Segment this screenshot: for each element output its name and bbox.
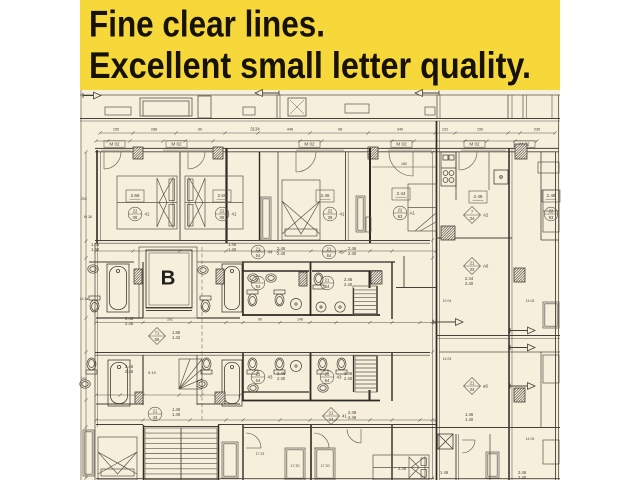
svg-text:14 03: 14 03 (526, 437, 535, 441)
svg-text:17 20: 17 20 (321, 464, 330, 468)
svg-text:21: 21 (256, 278, 261, 283)
svg-text:17 23: 17 23 (256, 452, 265, 456)
svg-text:M 02: M 02 (109, 142, 120, 147)
svg-text:3134: 3134 (250, 127, 260, 132)
svg-text:21: 21 (325, 278, 330, 283)
svg-text:A2: A2 (483, 213, 489, 218)
svg-text:41: 41 (232, 212, 237, 217)
svg-text:10 04: 10 04 (443, 299, 452, 303)
svg-text:A1: A1 (410, 211, 416, 216)
svg-text:21: 21 (325, 372, 330, 377)
svg-text:M 36: M 36 (84, 215, 92, 219)
svg-text:14 03: 14 03 (526, 299, 535, 303)
svg-text:1 46: 1 46 (440, 470, 449, 475)
svg-text:2.60: 2.60 (218, 193, 227, 198)
svg-text:21: 21 (470, 260, 475, 265)
svg-text:2.66: 2.66 (131, 193, 140, 198)
svg-text:M 02: M 02 (396, 142, 407, 147)
svg-text:102: 102 (442, 128, 448, 132)
svg-text:98: 98 (338, 128, 342, 132)
svg-text:44: 44 (268, 250, 273, 255)
svg-text:43: 43 (268, 375, 273, 380)
svg-text:22: 22 (549, 209, 554, 214)
svg-text:22: 22 (133, 209, 138, 214)
svg-text:54: 54 (256, 253, 261, 258)
svg-text:2.40: 2.40 (348, 251, 357, 256)
svg-text:8 19: 8 19 (148, 371, 155, 375)
svg-text:2.46: 2.46 (398, 466, 407, 471)
svg-text:14 03: 14 03 (443, 357, 452, 361)
svg-text:21: 21 (329, 410, 334, 415)
svg-text:22: 22 (220, 209, 225, 214)
svg-text:148: 148 (297, 318, 303, 322)
svg-text:17 20: 17 20 (291, 464, 300, 468)
svg-text:2.46: 2.46 (348, 415, 357, 420)
svg-text:24: 24 (329, 417, 334, 422)
svg-text:22: 22 (398, 208, 403, 213)
svg-text:M 02: M 02 (304, 142, 315, 147)
svg-text:39: 39 (328, 215, 333, 220)
svg-text:21: 21 (470, 380, 475, 385)
svg-text:292: 292 (167, 318, 173, 322)
svg-text:43: 43 (337, 375, 342, 380)
svg-text:33: 33 (470, 267, 475, 272)
svg-text:1.40: 1.40 (465, 417, 474, 422)
svg-text:96: 96 (258, 318, 262, 322)
svg-text:2.40: 2.40 (277, 251, 286, 256)
svg-text:54: 54 (256, 284, 261, 289)
svg-text:21: 21 (327, 247, 332, 252)
svg-text:2.40: 2.40 (465, 281, 474, 286)
svg-text:55: 55 (155, 337, 160, 342)
svg-text:340: 340 (397, 128, 403, 132)
svg-text:2.40: 2.40 (344, 282, 353, 287)
svg-text:93: 93 (549, 215, 554, 220)
svg-text:2.40: 2.40 (277, 376, 286, 381)
svg-text:A6: A6 (483, 264, 489, 269)
svg-text:446: 446 (287, 128, 293, 132)
svg-text:235: 235 (534, 128, 540, 132)
svg-text:90: 90 (198, 128, 202, 132)
svg-text:150: 150 (113, 128, 119, 132)
svg-text:a6: a6 (483, 384, 488, 389)
svg-text:21: 21 (256, 247, 261, 252)
svg-text:43: 43 (153, 415, 158, 420)
svg-text:Fine clear lines.: Fine clear lines. (89, 4, 325, 45)
svg-text:2.49: 2.49 (474, 194, 483, 199)
svg-text:34: 34 (470, 216, 475, 221)
svg-text:34: 34 (470, 387, 475, 392)
svg-text:2.46: 2.46 (321, 193, 330, 198)
svg-text:54: 54 (325, 378, 330, 383)
svg-text:2.40: 2.40 (344, 376, 353, 381)
svg-text:54: 54 (327, 253, 332, 258)
svg-text:2.40: 2.40 (518, 475, 527, 480)
svg-text:292: 292 (81, 197, 87, 201)
svg-text:2.45: 2.45 (125, 321, 134, 326)
svg-text:22: 22 (328, 209, 333, 214)
svg-text:45: 45 (339, 250, 344, 255)
svg-text:21: 21 (153, 409, 158, 414)
svg-text:54: 54 (256, 378, 261, 383)
svg-text:1.42: 1.42 (172, 335, 181, 340)
svg-text:08: 08 (133, 215, 138, 220)
svg-text:B: B (161, 267, 176, 290)
svg-text:1.40: 1.40 (228, 247, 237, 252)
svg-text:54: 54 (325, 284, 330, 289)
svg-text:2.44: 2.44 (397, 191, 406, 196)
svg-text:41: 41 (342, 414, 347, 419)
svg-text:288: 288 (151, 128, 157, 132)
svg-text:08: 08 (220, 215, 225, 220)
svg-text:150: 150 (477, 128, 483, 132)
svg-text:1.40: 1.40 (172, 412, 181, 417)
svg-text:41: 41 (145, 212, 150, 217)
svg-text:41: 41 (340, 212, 345, 217)
svg-text:21: 21 (256, 372, 261, 377)
svg-text:M 02: M 02 (171, 142, 182, 147)
svg-text:93: 93 (398, 214, 403, 219)
svg-text:2.48: 2.48 (547, 193, 556, 198)
svg-text:14 3a: 14 3a (80, 297, 89, 301)
svg-text:71: 71 (155, 330, 160, 335)
svg-text:180: 180 (401, 162, 407, 166)
svg-text:Excellent small letter quality: Excellent small letter quality. (89, 45, 531, 86)
svg-text:M 02: M 02 (469, 142, 480, 147)
svg-text:2.45: 2.45 (125, 369, 134, 374)
svg-text:1.40: 1.40 (91, 247, 100, 252)
